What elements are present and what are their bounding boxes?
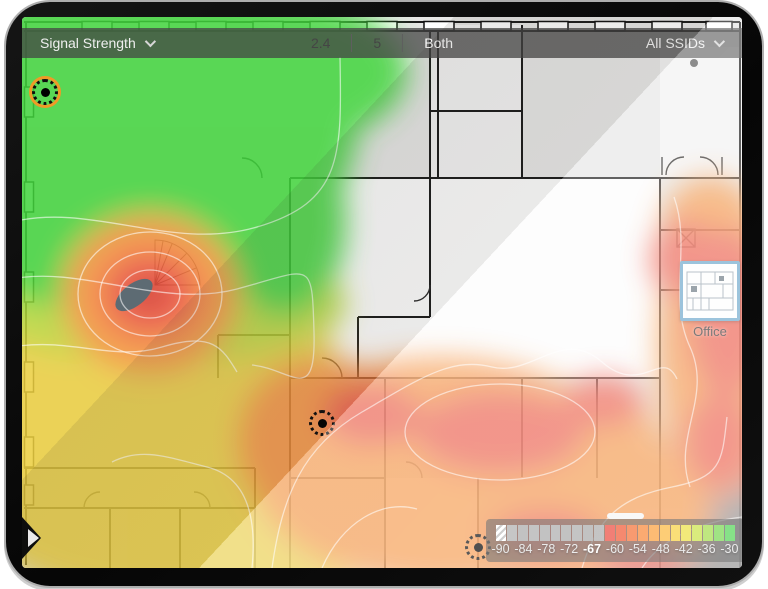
band-option-5[interactable]: 5 — [352, 28, 402, 58]
legend-cell — [518, 525, 528, 541]
legend-cell — [540, 525, 550, 541]
minimap-floor-label: Office — [680, 324, 740, 339]
map-scale-bar — [607, 513, 644, 519]
legend-cell — [627, 525, 637, 541]
minimap-plan-sketch — [683, 264, 737, 318]
legend-cell — [671, 525, 681, 541]
legend-cell — [616, 525, 626, 541]
page: Office Signal Strength 2.4 5 Both All SS… — [0, 0, 768, 589]
legend-cell — [551, 525, 561, 541]
band-selector: 2.4 5 Both — [290, 28, 474, 58]
legend-cell — [561, 525, 571, 541]
legend-cell — [638, 525, 648, 541]
legend-tick-label: -48 — [650, 542, 671, 556]
legend-cell — [681, 525, 691, 541]
legend-cell — [725, 525, 735, 541]
survey-point-dot — [690, 59, 698, 67]
legend-cell — [529, 525, 539, 541]
signal-strength-legend[interactable]: -90-84-78-72-67-60-54-48-42-36-30 — [486, 519, 742, 562]
legend-tick-label: -60 — [604, 542, 625, 556]
visualization-selector[interactable]: Signal Strength — [40, 35, 153, 51]
legend-tick-label: -78 — [536, 542, 557, 556]
floor-minimap-thumbnail[interactable] — [680, 261, 740, 321]
legend-cell — [496, 525, 506, 541]
legend-cell — [692, 525, 702, 541]
visualization-selector-label: Signal Strength — [40, 35, 136, 51]
legend-cells — [496, 525, 735, 541]
legend-cell — [572, 525, 582, 541]
legend-tick-label: -54 — [627, 542, 648, 556]
legend-cell — [605, 525, 615, 541]
floor-minimap[interactable]: Office — [680, 261, 740, 339]
legend-cell — [594, 525, 604, 541]
chevron-down-icon — [144, 36, 155, 47]
legend-tick-label: -36 — [696, 542, 717, 556]
ssid-selector[interactable]: All SSIDs — [646, 35, 722, 51]
band-option-2-4[interactable]: 2.4 — [290, 28, 351, 58]
chevron-down-icon — [714, 36, 725, 47]
legend-tick-labels: -90-84-78-72-67-60-54-48-42-36-30 — [490, 542, 740, 556]
floorplan-heatmap-canvas[interactable] — [22, 17, 742, 568]
top-toolbar: Signal Strength 2.4 5 Both All SSIDs — [22, 28, 742, 58]
legend-cell — [649, 525, 659, 541]
tablet-frame: Office Signal Strength 2.4 5 Both All SS… — [6, 2, 762, 586]
legend-tick-label: -90 — [490, 542, 511, 556]
legend-cell — [507, 525, 517, 541]
legend-cell — [583, 525, 593, 541]
legend-tick-label: -84 — [513, 542, 534, 556]
legend-tick-label: -42 — [673, 542, 694, 556]
legend-cell — [703, 525, 713, 541]
legend-cell — [660, 525, 670, 541]
band-option-both[interactable]: Both — [403, 28, 474, 58]
access-point-icon[interactable] — [32, 79, 58, 105]
legend-cell — [714, 525, 724, 541]
legend-tick-label: -67 — [582, 542, 603, 556]
ssid-selector-label: All SSIDs — [646, 35, 705, 51]
app-screen: Office Signal Strength 2.4 5 Both All SS… — [22, 17, 742, 568]
access-point-icon[interactable] — [309, 410, 335, 436]
legend-tick-label: -72 — [559, 542, 580, 556]
legend-tick-label: -30 — [719, 542, 740, 556]
